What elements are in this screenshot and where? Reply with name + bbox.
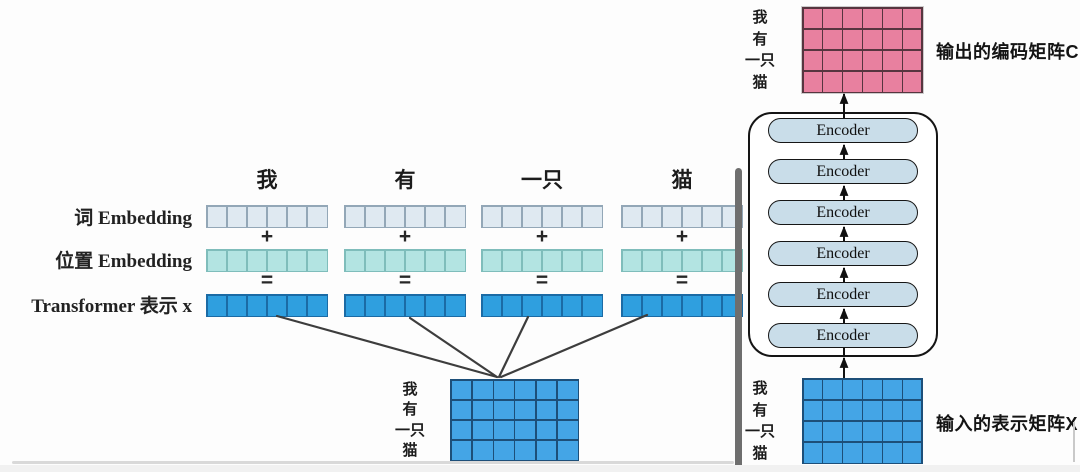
- encoder-block-2: Encoder: [768, 282, 918, 307]
- column-label-word4: 猫: [621, 164, 743, 194]
- encoder-block-3: Encoder: [768, 241, 918, 266]
- transformer-representation-strip: [621, 294, 743, 317]
- matrix-row-label: 我: [385, 382, 435, 397]
- matrix-row-label: 有: [385, 402, 435, 417]
- equals-operator: =: [621, 272, 743, 290]
- matrix-row-label: 一只: [742, 424, 778, 439]
- left-input-matrix: [450, 379, 579, 461]
- transformer-representation-strip: [344, 294, 466, 317]
- transformer-embedding-figure: 我 有 一只 猫 词 Embedding 位置 Embedding Transf…: [0, 0, 1080, 472]
- transformer-representation-strip: [206, 294, 328, 317]
- plus-operator: +: [344, 228, 466, 246]
- input-matrix-caption: 输入的表示矩阵X: [936, 410, 1078, 436]
- encoder-stack-container: [748, 112, 938, 357]
- output-encoding-matrix: [802, 7, 923, 93]
- matrix-row-label: 猫: [742, 446, 778, 461]
- equals-operator: =: [206, 272, 328, 290]
- position-embedding-row-label: 位置 Embedding: [0, 246, 192, 273]
- column-label-word3: 一只: [481, 164, 603, 194]
- matrix-row-label: 猫: [385, 443, 435, 458]
- output-matrix-caption: 输出的编码矩阵C: [936, 38, 1079, 64]
- input-representation-matrix: [802, 378, 923, 464]
- panel-divider: [735, 168, 742, 472]
- transformer-representation-row-label: Transformer 表示 x: [0, 291, 192, 318]
- encoder-block-1: Encoder: [768, 323, 918, 348]
- plus-operator: +: [206, 228, 328, 246]
- word-embedding-row-label: 词 Embedding: [0, 203, 192, 230]
- output-matrix-row-labels: 我 有 一只 猫: [742, 7, 778, 93]
- left-matrix-row-labels: 我 有 一只 猫: [385, 379, 435, 461]
- matrix-row-label: 我: [742, 10, 778, 25]
- transformer-representation-strip: [481, 294, 603, 317]
- matrix-row-label: 我: [742, 381, 778, 396]
- column-label-word2: 有: [344, 164, 466, 194]
- plus-operator: +: [481, 228, 603, 246]
- bottom-edge-band: [0, 465, 1080, 472]
- plus-operator: +: [621, 228, 743, 246]
- equals-operator: =: [344, 272, 466, 290]
- matrix-row-label: 有: [742, 403, 778, 418]
- encoder-block-6: Encoder: [768, 118, 918, 143]
- encoder-block-4: Encoder: [768, 200, 918, 225]
- left-panel-bottom-edge: [12, 461, 734, 464]
- matrix-row-label: 有: [742, 32, 778, 47]
- encoder-block-5: Encoder: [768, 159, 918, 184]
- right-edge-tick: [1073, 422, 1075, 462]
- column-label-word1: 我: [206, 164, 328, 194]
- matrix-row-label: 一只: [742, 53, 778, 68]
- matrix-row-label: 猫: [742, 75, 778, 90]
- equals-operator: =: [481, 272, 603, 290]
- matrix-row-label: 一只: [385, 423, 435, 438]
- input-matrix-row-labels: 我 有 一只 猫: [742, 378, 778, 464]
